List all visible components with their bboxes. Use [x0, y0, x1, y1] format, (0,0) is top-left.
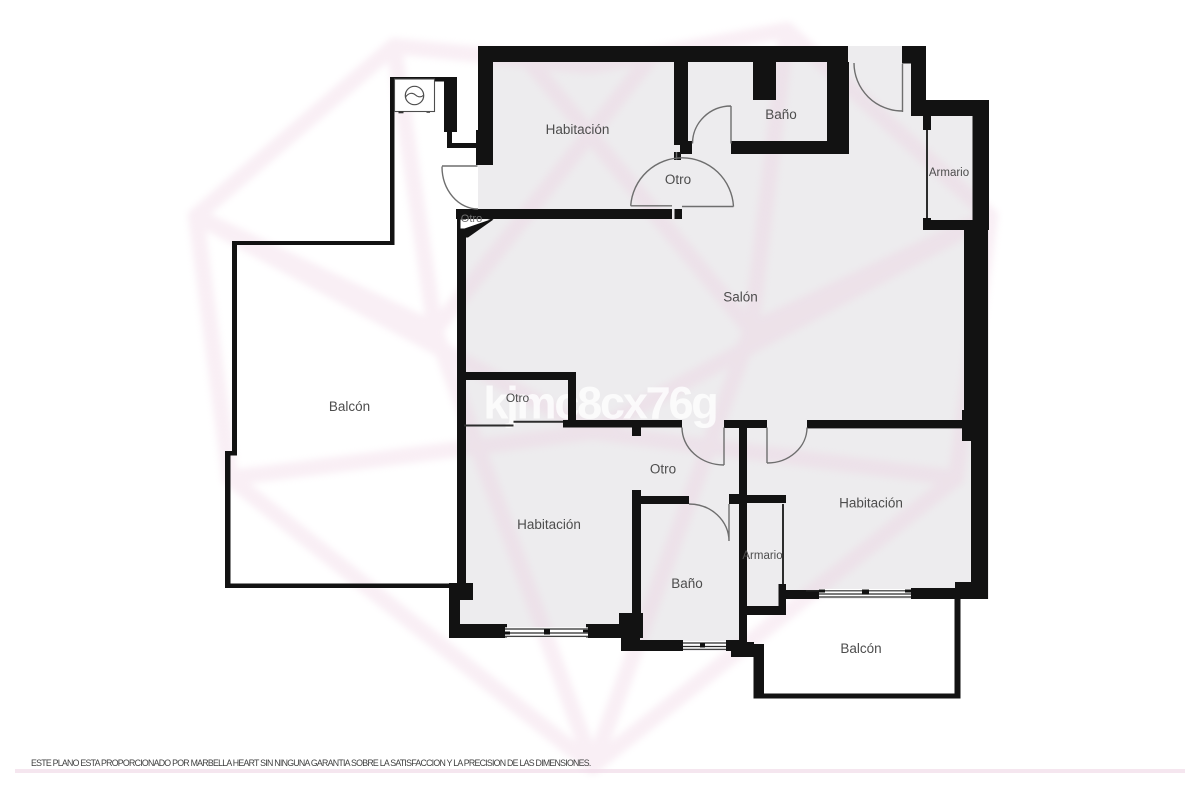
svg-text:Otro: Otro: [461, 213, 482, 225]
svg-text:Balcón: Balcón: [329, 399, 370, 414]
svg-text:Baño: Baño: [765, 107, 797, 122]
svg-text:Otro: Otro: [665, 172, 691, 187]
svg-text:Armario: Armario: [929, 167, 969, 179]
svg-text:Armario: Armario: [742, 550, 782, 562]
svg-text:Balcón: Balcón: [840, 641, 881, 656]
svg-text:ESTE PLANO ESTA PROPORCIONADO: ESTE PLANO ESTA PROPORCIONADO POR MARBEL…: [31, 758, 591, 768]
svg-text:Baño: Baño: [671, 576, 703, 591]
svg-text:Habitación: Habitación: [546, 122, 610, 137]
svg-text:Otro: Otro: [506, 391, 530, 405]
svg-text:Otro: Otro: [650, 462, 676, 477]
svg-text:Habitación: Habitación: [839, 496, 903, 511]
svg-text:Salón: Salón: [723, 290, 758, 305]
svg-text:Habitación: Habitación: [517, 517, 581, 532]
